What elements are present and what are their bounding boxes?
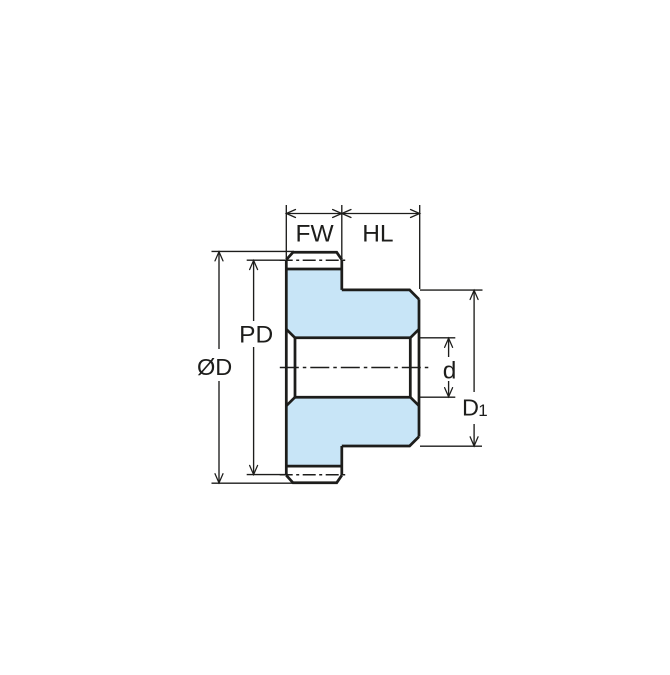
- svg-text:FW: FW: [296, 221, 335, 248]
- svg-text:d: d: [443, 358, 457, 385]
- svg-text:PD: PD: [239, 322, 273, 349]
- svg-text:HL: HL: [362, 221, 393, 248]
- svg-text:ØD: ØD: [197, 354, 232, 380]
- svg-text:1: 1: [478, 401, 487, 420]
- svg-text:D: D: [462, 395, 479, 421]
